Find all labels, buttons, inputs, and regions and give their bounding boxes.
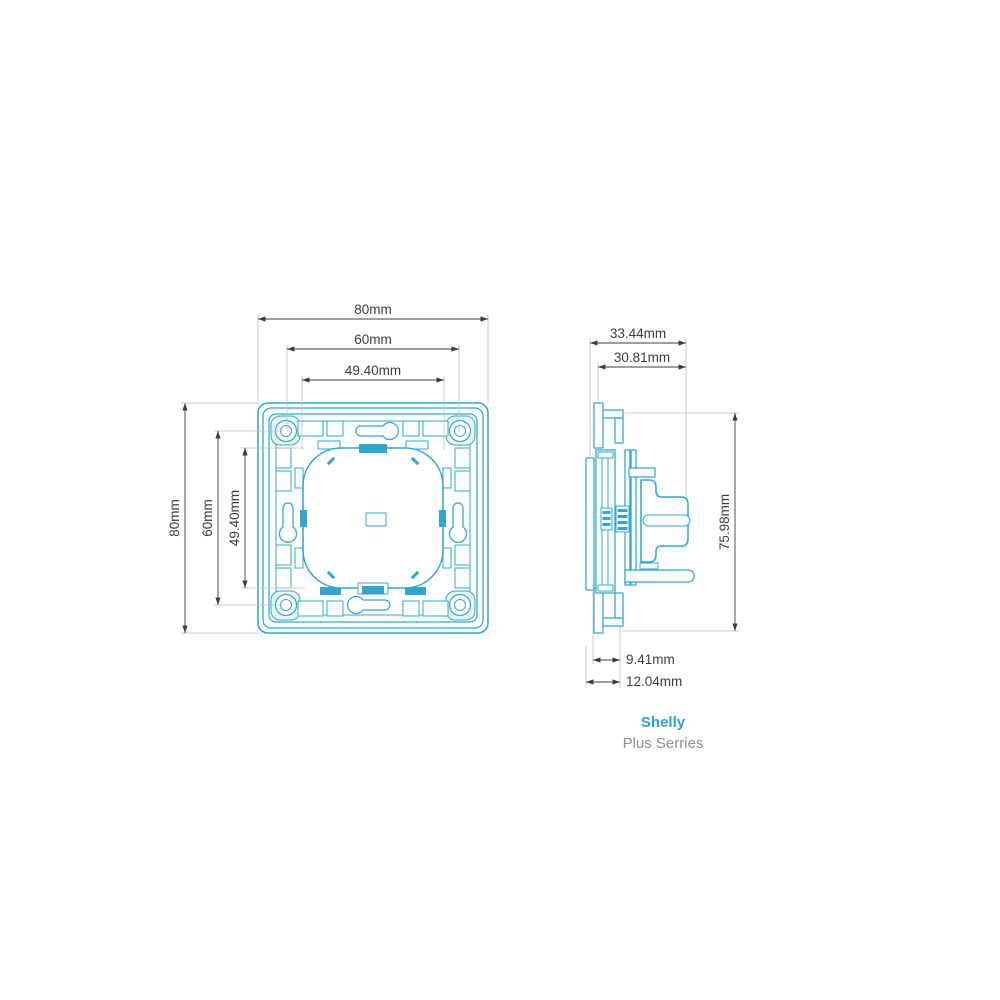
clip-rect xyxy=(327,421,343,436)
clip-rect xyxy=(455,545,470,565)
side-top-flange-leg xyxy=(615,418,623,443)
dim-label-front-height-inner: 49.40mm xyxy=(227,490,242,546)
side-bottom-flange xyxy=(594,588,603,633)
side-top-flange-bar xyxy=(603,410,623,418)
clip-rect xyxy=(455,568,470,588)
clip-rect xyxy=(327,601,343,616)
side-plate-cap xyxy=(598,452,613,458)
inner-rib xyxy=(443,548,451,568)
dim-label-side-height: 75.98mm xyxy=(717,494,732,550)
clip-rect xyxy=(455,471,470,491)
center-window xyxy=(366,513,386,526)
clip-rect xyxy=(276,545,291,565)
corner-screw-hole-inner xyxy=(455,600,466,611)
inner-rib xyxy=(443,468,451,488)
tab-left xyxy=(300,510,307,527)
spring-stripe xyxy=(603,517,611,520)
clip-rect xyxy=(423,601,448,616)
mounting-claw-bottom xyxy=(625,570,694,582)
spring-stripe xyxy=(618,509,628,512)
technical-drawing: 80mm 60mm 49.40mm 80mm 60mm 49.40mm 33.4… xyxy=(0,0,1000,1000)
dim-label-side-inset-outer: 12.04mm xyxy=(626,674,682,689)
device-body-slot xyxy=(643,515,690,526)
clip-rect xyxy=(403,421,419,436)
tab-right xyxy=(439,510,446,527)
dim-label-side-inset-inner: 9.41mm xyxy=(626,652,675,667)
clip-rect xyxy=(403,601,419,616)
inner-rib xyxy=(295,548,303,568)
spring-stripe xyxy=(603,511,611,514)
front-view xyxy=(258,403,488,633)
dim-label-front-width-inner: 49.40mm xyxy=(345,363,401,378)
corner-screw-hole-inner xyxy=(455,426,466,437)
dim-label-side-depth-inner: 30.81mm xyxy=(614,350,670,365)
side-view xyxy=(586,403,694,633)
spring-stripe xyxy=(618,527,628,530)
dim-label-front-width-mid: 60mm xyxy=(354,332,392,347)
brand-caption: Shelly Plus Serries xyxy=(623,714,704,752)
corner-screw-hole-inner xyxy=(281,426,292,437)
clip-rect xyxy=(455,448,470,468)
brand-series: Plus Serries xyxy=(623,735,704,752)
mounting-claw-top xyxy=(629,468,655,477)
dim-label-side-depth-outer: 33.44mm xyxy=(610,326,666,341)
dim-label-front-width-outer: 80mm xyxy=(354,302,392,317)
side-bottom-flange-leg xyxy=(615,593,623,618)
side-bottom-flange-bar xyxy=(603,618,623,626)
tab-top xyxy=(359,444,387,453)
brand-name: Shelly xyxy=(641,714,686,731)
dim-label-front-height-outer: 80mm xyxy=(167,499,182,537)
side-back-plate xyxy=(586,458,594,590)
side-plate-cap xyxy=(598,585,613,591)
claw-link xyxy=(640,563,658,569)
side-top-flange xyxy=(594,403,603,448)
spring-stripe xyxy=(603,523,611,526)
spring-stripe xyxy=(618,521,628,524)
spring-stripe xyxy=(618,515,628,518)
inner-rib xyxy=(295,468,303,488)
clip-rect xyxy=(276,448,291,468)
clip-rect xyxy=(298,601,323,616)
clip-rect xyxy=(276,568,291,588)
canvas: 80mm 60mm 49.40mm 80mm 60mm 49.40mm 33.4… xyxy=(0,0,1000,1000)
clip-rect xyxy=(276,471,291,491)
corner-screw-hole-inner xyxy=(281,600,292,611)
dim-label-front-height-mid: 60mm xyxy=(200,499,215,537)
tab-bottom xyxy=(362,586,384,594)
